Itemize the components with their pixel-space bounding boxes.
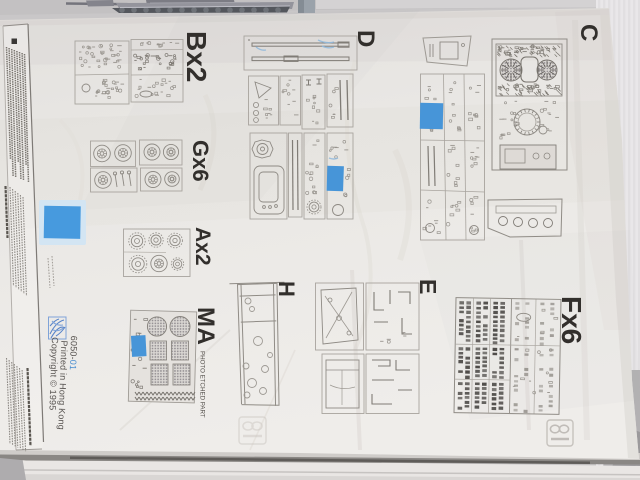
svg-text:C: C	[575, 24, 602, 41]
svg-text:PHOTO ETCHED PART: PHOTO ETCHED PART	[199, 351, 206, 418]
svg-text:H: H	[274, 281, 299, 297]
svg-text:Bx2: Bx2	[181, 31, 212, 82]
svg-text:6050-01: 6050-01	[68, 336, 79, 371]
svg-text:Fx6: Fx6	[556, 296, 587, 344]
svg-text:E: E	[415, 279, 441, 294]
svg-text:Gx6: Gx6	[188, 140, 213, 182]
svg-text:MA: MA	[192, 307, 219, 345]
svg-text:D: D	[352, 30, 379, 47]
svg-text:Ax2: Ax2	[191, 227, 214, 266]
